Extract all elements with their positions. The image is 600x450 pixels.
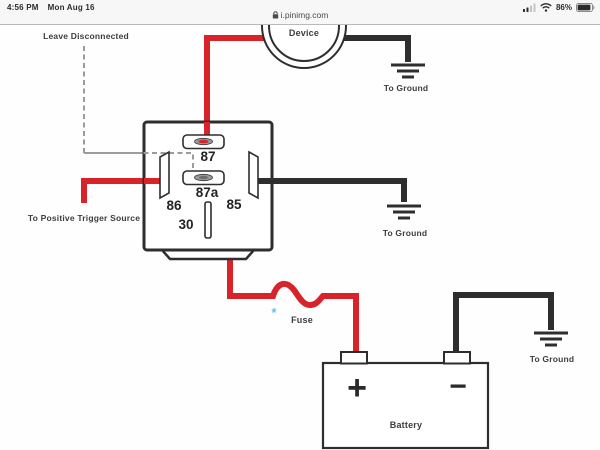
battery-label: Battery [390, 420, 422, 430]
relay-pin-87a [183, 171, 224, 185]
relay-wiring-diagram: To Ground To Ground To Ground Device [0, 25, 600, 450]
pin87a-label: 87a [196, 185, 219, 200]
battery-negative-symbol: − [449, 370, 467, 403]
pin85-label: 85 [226, 197, 242, 212]
to-positive-trigger-label: To Positive Trigger Source [28, 213, 140, 223]
to-ground-bottom-label: To Ground [530, 354, 575, 364]
ground-symbol-bottom [534, 333, 568, 345]
wifi-icon [540, 3, 552, 12]
wire-battery-to-ground [456, 295, 551, 353]
device-label: Device [289, 28, 319, 38]
lock-icon [272, 11, 279, 19]
relay-pin-85 [249, 152, 258, 198]
status-bar: 4:56 PMMon Aug 16 i.pinimg.com 86% [0, 0, 600, 25]
relay-pin-30 [205, 202, 211, 238]
battery-positive-terminal [341, 352, 367, 364]
fuse-asterisk: * [271, 305, 277, 320]
pin87-label: 87 [200, 149, 215, 164]
wire-device-to-ground [344, 38, 408, 62]
relay-pin-87 [183, 135, 224, 149]
pin30-label: 30 [178, 217, 193, 232]
leave-disconnected-label: Leave Disconnected [43, 31, 129, 41]
url-text: i.pinimg.com [281, 10, 329, 20]
url-bar[interactable]: i.pinimg.com [0, 10, 600, 20]
pin86-label: 86 [166, 198, 182, 213]
ground-symbol-top [391, 65, 425, 77]
relay-pin-86 [160, 152, 169, 198]
to-ground-top-label: To Ground [384, 83, 429, 93]
battery-percent-text: 86% [556, 3, 572, 12]
status-right: 86% [523, 3, 595, 12]
to-ground-middle-label: To Ground [383, 228, 428, 238]
battery-symbol: + − Battery [323, 352, 488, 448]
fuse-label: Fuse [291, 315, 313, 325]
battery-icon [576, 3, 595, 12]
device-symbol: Device [262, 25, 346, 68]
battery-positive-symbol: + [347, 369, 367, 407]
ground-symbol-middle [387, 206, 421, 218]
battery-negative-terminal [444, 352, 470, 364]
cellular-signal-icon [523, 3, 536, 12]
safari-screenshot: 4:56 PMMon Aug 16 i.pinimg.com 86% [0, 0, 600, 450]
